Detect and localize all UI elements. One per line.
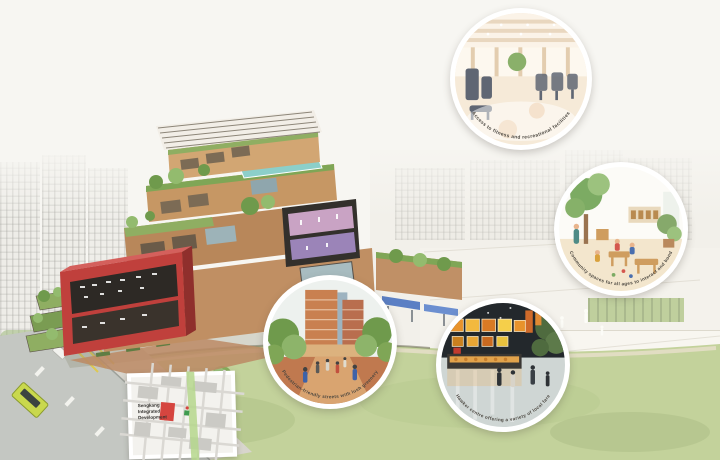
map-label-line1: Sengkang xyxy=(138,403,160,409)
childcare-scene xyxy=(559,167,683,291)
hawker-scene xyxy=(441,303,565,427)
inset-circle-fitness: Access to fitness and recreational facil… xyxy=(450,8,592,150)
map-station-marker xyxy=(184,410,189,415)
location-map-inset: Sengkang Integrated Development xyxy=(127,371,237,460)
right-terrace xyxy=(376,249,462,300)
map-label-line3: Development xyxy=(138,414,167,420)
towers xyxy=(300,290,364,359)
stall-sign xyxy=(453,348,460,354)
gym-scene xyxy=(455,13,587,145)
street-scene xyxy=(268,280,392,404)
rendering-collage: Access to fitness and recreational facil… xyxy=(0,0,720,460)
inset-circle-street: Pedestrian-friendly streets with lush gr… xyxy=(263,275,397,409)
map-label-line2: Integrated xyxy=(138,409,161,415)
inset-circle-hawker: Hawker centre offering a variety of loca… xyxy=(436,298,570,432)
indoor-tree xyxy=(508,53,526,71)
location-map: Sengkang Integrated Development xyxy=(131,375,233,456)
stall-counter xyxy=(447,354,521,369)
inset-circle-childcare: Community spaces for all ages to interac… xyxy=(554,162,688,296)
sports-hall-cutaway xyxy=(282,199,360,267)
